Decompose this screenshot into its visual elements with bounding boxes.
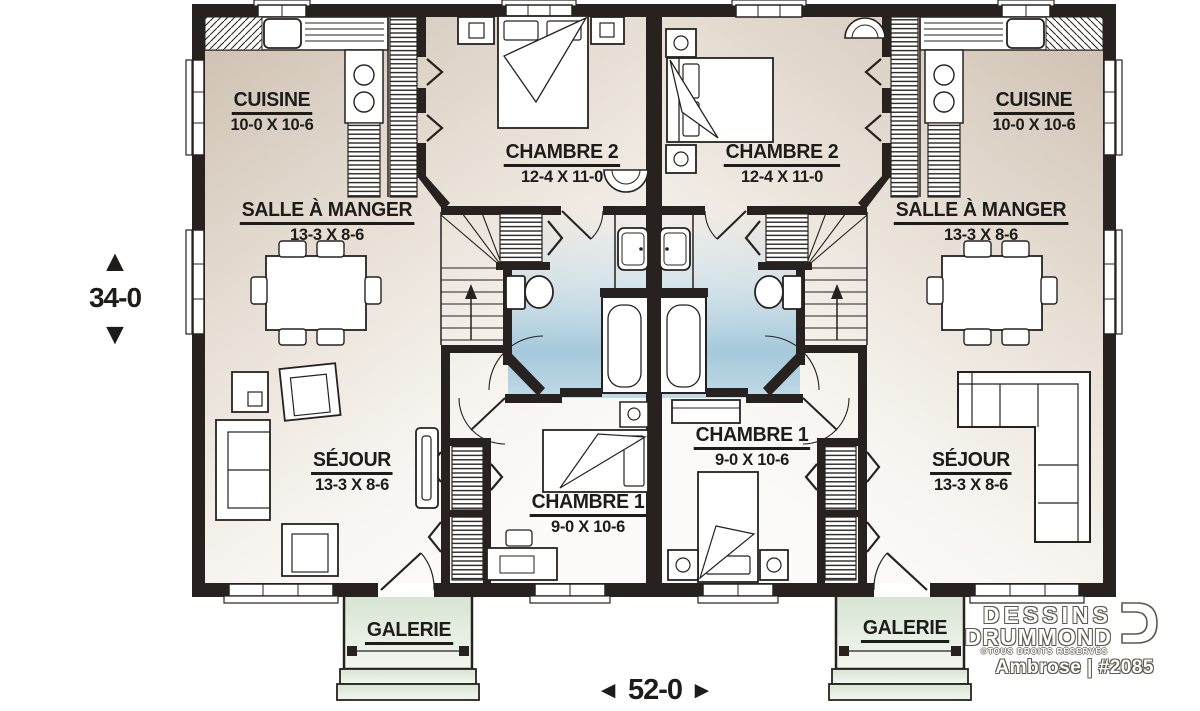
room-name: CHAMBRE 2 bbox=[724, 142, 841, 167]
plan-id: Ambrose | #2085 bbox=[995, 657, 1154, 679]
rights-notice: ©TOUS DROITS RÉSERVÉS bbox=[981, 647, 1108, 656]
room-label-kitchen-right: CUISINE 10-0 X 10-6 bbox=[992, 90, 1075, 134]
depth-value: 34-0 bbox=[84, 282, 146, 314]
room-dims: 13-3 X 8-6 bbox=[310, 477, 394, 494]
room-name: CUISINE bbox=[232, 90, 313, 115]
width-value: 52-0 bbox=[628, 676, 682, 705]
room-label-dining-left: SALLE À MANGER 13-3 X 8-6 bbox=[237, 200, 417, 244]
room-dims: 10-0 X 10-6 bbox=[992, 117, 1075, 134]
floor-plan-page: CUISINE 10-0 X 10-6 SALLE À MANGER 13-3 … bbox=[0, 0, 1200, 711]
room-dims: 10-0 X 10-6 bbox=[230, 117, 313, 134]
room-label-kitchen-left: CUISINE 10-0 X 10-6 bbox=[230, 90, 313, 134]
room-label-living-right: SÉJOUR 13-3 X 8-6 bbox=[929, 450, 1013, 494]
room-label-bedroom1-left: CHAMBRE 1 9-0 X 10-6 bbox=[528, 492, 648, 536]
room-name: GALERIE bbox=[861, 618, 949, 643]
room-name: SALLE À MANGER bbox=[240, 200, 414, 225]
room-name: CUISINE bbox=[994, 90, 1075, 115]
room-name: CHAMBRE 2 bbox=[504, 142, 621, 167]
room-label-porch-left: GALERIE bbox=[364, 620, 455, 645]
up-arrow-icon: ▲ bbox=[84, 248, 146, 275]
room-dims: 13-3 X 8-6 bbox=[891, 227, 1071, 244]
room-dims: 12-4 X 11-0 bbox=[502, 169, 622, 186]
room-label-bedroom2-left: CHAMBRE 2 12-4 X 11-0 bbox=[502, 142, 622, 186]
room-label-bedroom1-right: CHAMBRE 1 9-0 X 10-6 bbox=[692, 425, 812, 469]
room-dims: 13-3 X 8-6 bbox=[237, 227, 417, 244]
room-label-bedroom2-right: CHAMBRE 2 12-4 X 11-0 bbox=[722, 142, 842, 186]
room-name: CHAMBRE 1 bbox=[694, 425, 811, 450]
room-dims: 13-3 X 8-6 bbox=[929, 477, 1013, 494]
room-label-dining-right: SALLE À MANGER 13-3 X 8-6 bbox=[891, 200, 1071, 244]
room-name: GALERIE bbox=[365, 620, 453, 645]
room-dims: 9-0 X 10-6 bbox=[692, 452, 812, 469]
room-label-porch-right: GALERIE bbox=[860, 618, 951, 643]
room-name: SALLE À MANGER bbox=[894, 200, 1068, 225]
overall-width-dimension: ◄ 52-0 ► bbox=[596, 676, 714, 705]
room-name: SÉJOUR bbox=[311, 450, 393, 475]
room-dims: 9-0 X 10-6 bbox=[528, 519, 648, 536]
room-label-living-left: SÉJOUR 13-3 X 8-6 bbox=[310, 450, 394, 494]
drummond-d-logo-icon bbox=[1117, 600, 1161, 648]
right-arrow-icon: ► bbox=[690, 679, 714, 703]
overall-depth-dimension: ▲ 34-0 ▼ bbox=[84, 248, 146, 348]
down-arrow-icon: ▼ bbox=[84, 321, 146, 348]
room-dims: 12-4 X 11-0 bbox=[722, 169, 842, 186]
left-arrow-icon: ◄ bbox=[596, 679, 620, 703]
room-name: CHAMBRE 1 bbox=[530, 492, 647, 517]
room-name: SÉJOUR bbox=[930, 450, 1012, 475]
